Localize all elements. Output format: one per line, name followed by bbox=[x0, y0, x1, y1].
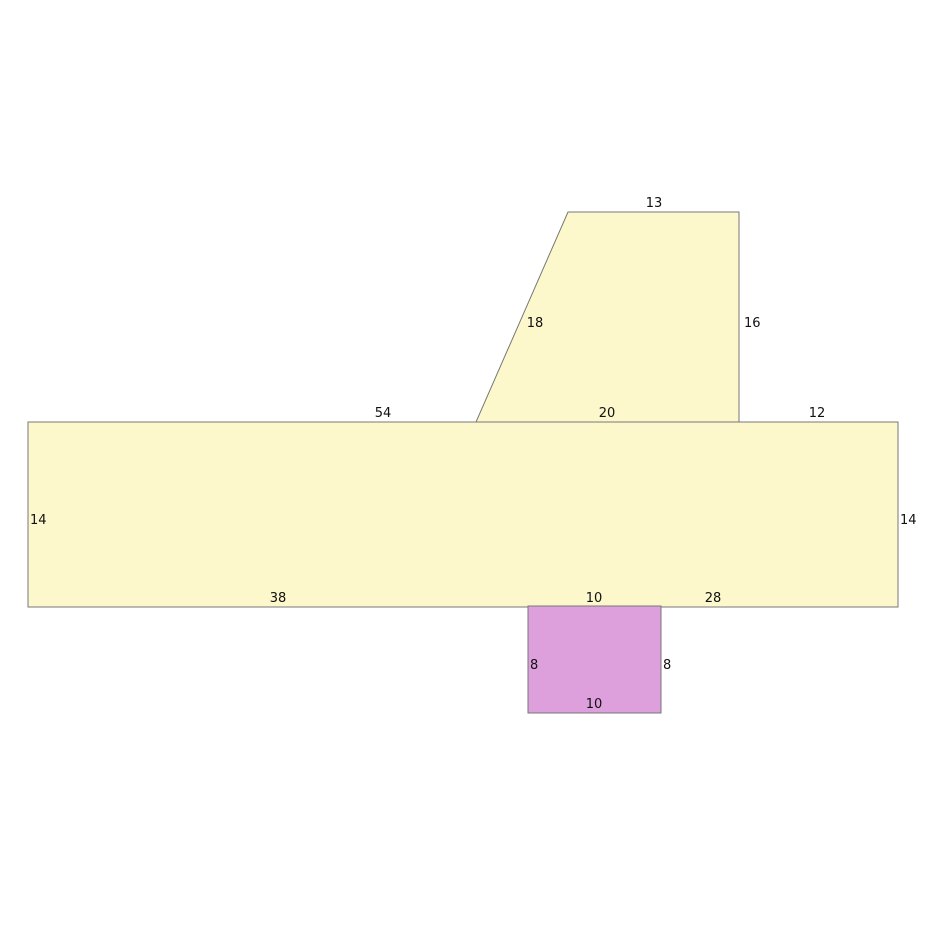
rectangle-bottom-left-segment-label: 38 bbox=[270, 591, 287, 606]
rectangle-bottom-middle-segment-label: 10 bbox=[586, 591, 603, 606]
trapezoid-right-label: 16 bbox=[744, 316, 761, 331]
rectangle-top-right-segment-label: 12 bbox=[809, 406, 826, 421]
trapezoid-top-label: 13 bbox=[646, 196, 663, 211]
rectangle-right-label: 14 bbox=[900, 513, 917, 528]
trapezoid-shape bbox=[476, 212, 739, 422]
square-bottom-label: 10 bbox=[586, 697, 603, 712]
rectangle-bottom-right-segment-label: 28 bbox=[705, 591, 722, 606]
trapezoid-slant-label: 18 bbox=[527, 316, 544, 331]
large-rectangle-shape bbox=[28, 422, 898, 607]
square-right-label: 8 bbox=[663, 658, 671, 673]
square-left-label: 8 bbox=[530, 658, 538, 673]
rectangle-top-left-segment-label: 54 bbox=[375, 406, 392, 421]
rectangle-top-middle-segment-label: 20 bbox=[599, 406, 616, 421]
rectangle-left-label: 14 bbox=[30, 513, 47, 528]
geometry-figure: 13 18 16 54 20 12 14 14 38 10 28 8 8 10 bbox=[0, 0, 925, 925]
